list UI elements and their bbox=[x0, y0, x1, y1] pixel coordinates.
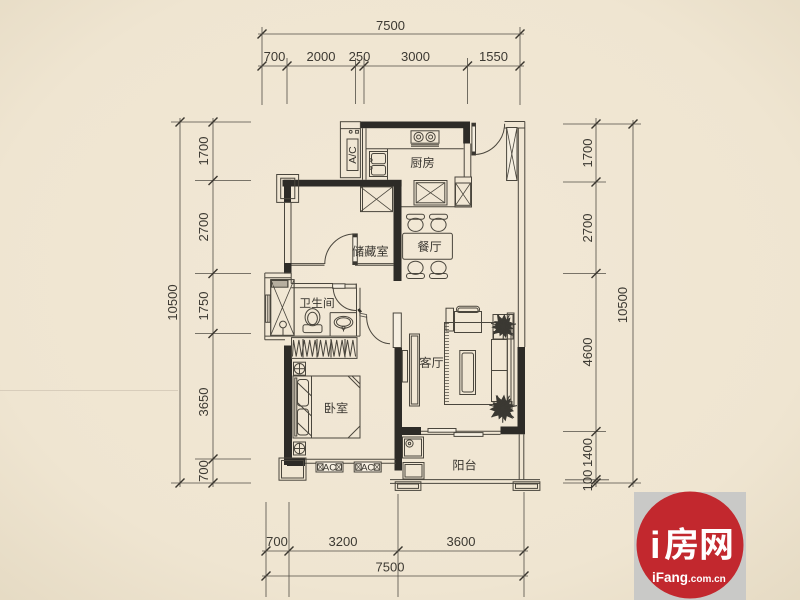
svg-text:250: 250 bbox=[349, 49, 371, 64]
svg-text:1700: 1700 bbox=[196, 137, 211, 166]
svg-text:2700: 2700 bbox=[580, 214, 595, 243]
svg-text:3600: 3600 bbox=[447, 534, 476, 549]
svg-text:700: 700 bbox=[264, 49, 286, 64]
svg-text:1750: 1750 bbox=[196, 292, 211, 321]
svg-text:AC: AC bbox=[361, 463, 374, 474]
svg-text:7500: 7500 bbox=[376, 560, 405, 575]
svg-text:2000: 2000 bbox=[307, 49, 336, 64]
svg-text:700: 700 bbox=[266, 534, 288, 549]
svg-text:7500: 7500 bbox=[376, 18, 405, 33]
svg-text:10500: 10500 bbox=[615, 287, 630, 323]
svg-text:1400: 1400 bbox=[580, 438, 595, 467]
svg-text:A/C: A/C bbox=[347, 146, 359, 164]
svg-text:1550: 1550 bbox=[479, 49, 508, 64]
svg-text:2700: 2700 bbox=[196, 213, 211, 242]
svg-text:1700: 1700 bbox=[580, 139, 595, 168]
svg-text:i: i bbox=[650, 525, 661, 567]
svg-text:3200: 3200 bbox=[329, 534, 358, 549]
svg-text:700: 700 bbox=[196, 460, 211, 482]
svg-text:3000: 3000 bbox=[401, 49, 430, 64]
svg-text:AC: AC bbox=[323, 463, 336, 474]
svg-text:4600: 4600 bbox=[580, 338, 595, 367]
svg-text:10500: 10500 bbox=[165, 284, 180, 320]
svg-text:100: 100 bbox=[580, 470, 595, 492]
svg-text:3650: 3650 bbox=[196, 388, 211, 417]
